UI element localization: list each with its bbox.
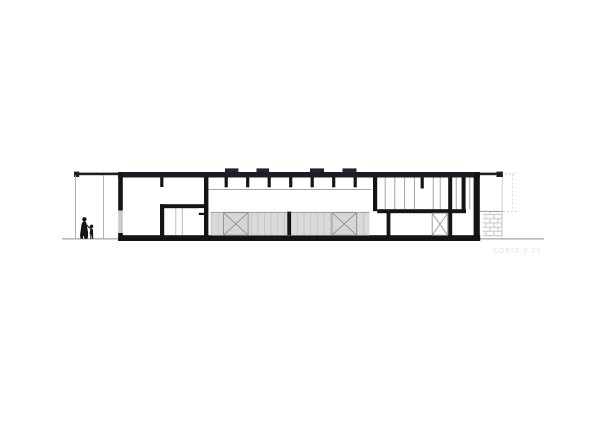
roof-joist (421, 178, 424, 189)
roof-joist (311, 178, 314, 188)
left-wall-base (118, 233, 123, 241)
pass-through-notch (199, 208, 204, 213)
adult-figure-icon (80, 217, 90, 239)
skylight-curb (343, 168, 357, 172)
right-bay-partition (387, 212, 391, 236)
clerestory-mullions (385, 178, 470, 210)
left-wall-opening (118, 211, 123, 234)
right-bay-header-beam (377, 209, 466, 213)
roof-slab (118, 172, 480, 178)
roof-joist (354, 178, 357, 188)
child-figure-icon (89, 225, 93, 239)
roof-joist (246, 178, 249, 188)
section-drawing: CORTE 0.01 (0, 0, 600, 424)
x-brace-panel (332, 213, 357, 236)
skylight-curb (310, 168, 324, 172)
porch-posts (76, 175, 104, 238)
panel-wall-mullion (287, 212, 291, 236)
roof-joist (289, 178, 292, 188)
service-box-wall (160, 204, 164, 236)
roof-edge-cap-left (74, 172, 79, 177)
pass-through-sill (199, 213, 204, 215)
roof-skylights (225, 168, 357, 172)
scale-figures (80, 217, 93, 239)
roof-joists (160, 178, 424, 189)
roof-joist (160, 178, 163, 188)
right-bay-walls (373, 172, 480, 241)
architectural-section-sheet: CORTE 0.01 (0, 0, 600, 424)
door-x-panel (432, 213, 447, 235)
roof-joist (225, 178, 228, 188)
interior-wall (204, 177, 208, 241)
floor-slab (118, 235, 480, 241)
roof-overhang-right (480, 173, 497, 176)
x-brace-panel (224, 213, 249, 236)
roof-overhang-left (74, 173, 119, 176)
roof-joist (332, 178, 335, 188)
roof-joist (268, 178, 271, 188)
glazed-panel-wall (211, 212, 370, 236)
service-box (160, 204, 204, 236)
brick-wall-field (483, 212, 502, 237)
brick-wall (480, 175, 517, 239)
right-bay-upper-wall (373, 177, 377, 211)
roof-edge-cap-right (497, 172, 503, 177)
section-label: CORTE 0.01 (493, 247, 541, 255)
skylight-curb (225, 168, 238, 172)
roof (74, 172, 518, 178)
left-exterior-wall (118, 173, 123, 241)
left-wall-upper (118, 173, 123, 211)
right-bay-post (448, 178, 452, 236)
right-exterior-wall (474, 172, 480, 241)
right-bay-short-post (462, 178, 466, 211)
skylight-curb (257, 168, 270, 172)
service-box-roof (160, 204, 204, 208)
